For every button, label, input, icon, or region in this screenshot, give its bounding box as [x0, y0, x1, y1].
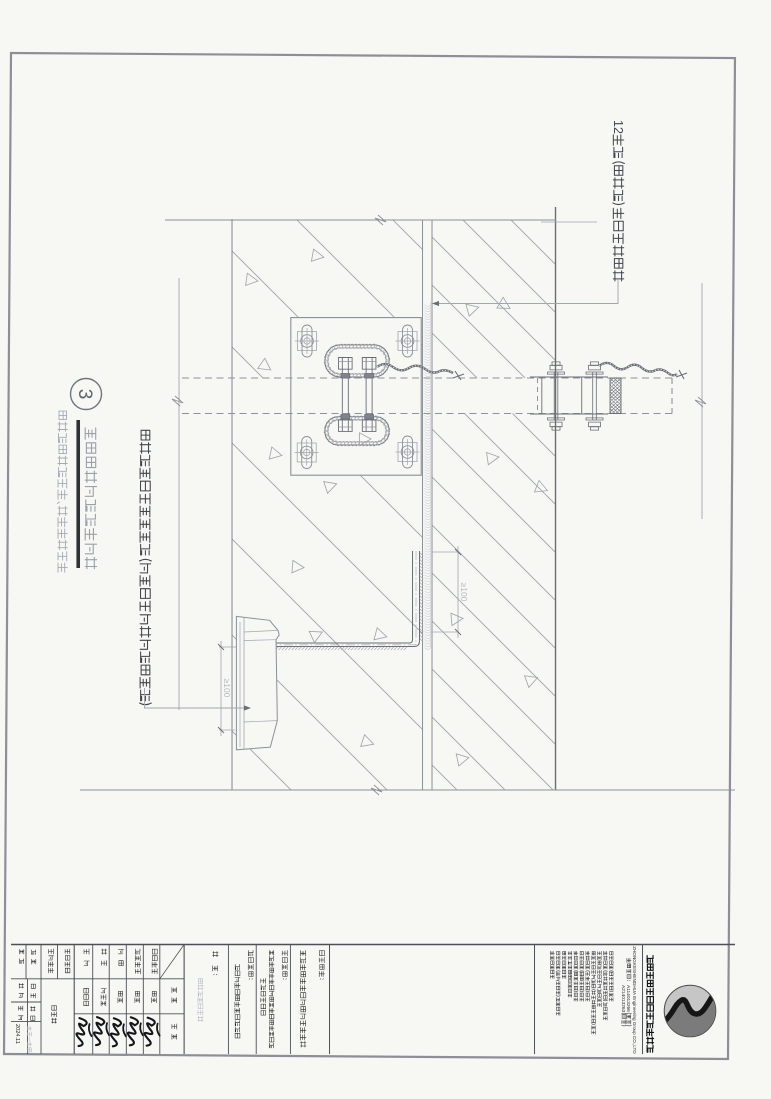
svg-text:A214013263: A214013263 [620, 985, 626, 1013]
svg-text:≥100: ≥100 [459, 583, 469, 602]
svg-text:ZHONGKESHENGHUA Engineering Gr: ZHONGKESHENGHUA Engineering Group CO.,LT… [632, 946, 637, 1054]
svg-text:≥100: ≥100 [222, 679, 232, 698]
svg-text:12: 12 [611, 120, 625, 134]
svg-text:2024.11: 2024.11 [14, 1024, 20, 1044]
svg-text:3: 3 [74, 389, 95, 400]
